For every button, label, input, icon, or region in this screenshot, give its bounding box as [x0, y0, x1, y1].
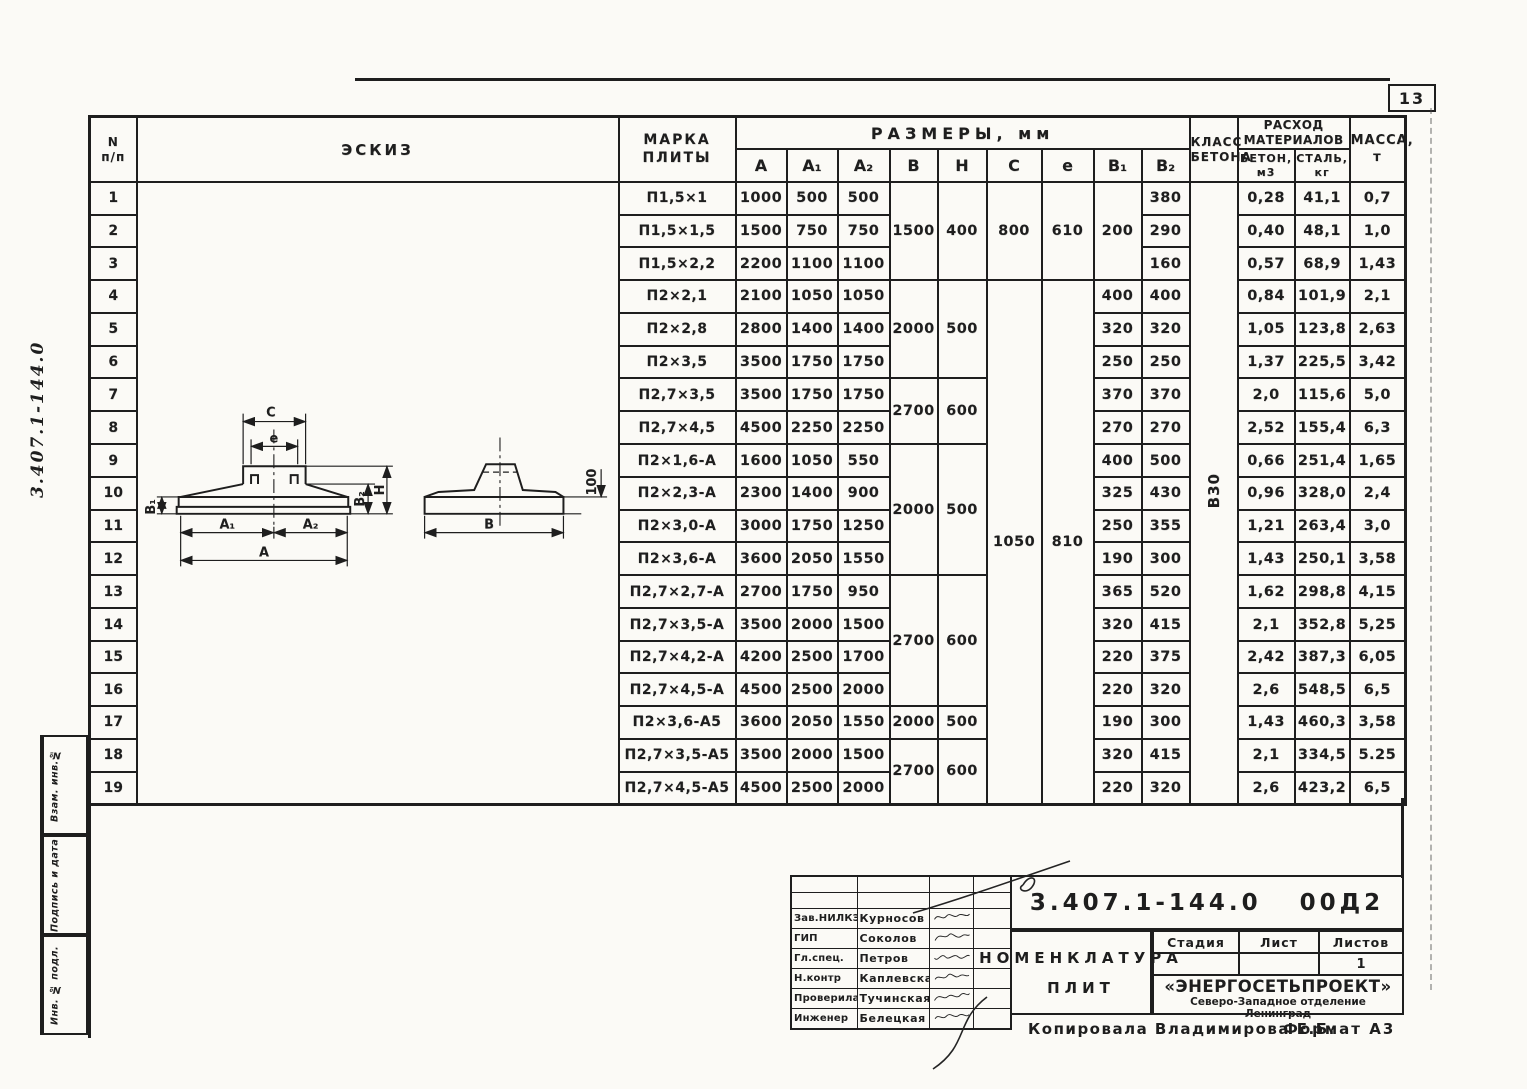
cell-mass: 3,42	[1350, 346, 1406, 379]
cell-h: 400	[938, 182, 987, 280]
cell-mass: 5,0	[1350, 378, 1406, 411]
cell-concrete: 2,1	[1238, 608, 1295, 641]
header-materials-2: МАТЕРИАЛОВ	[1239, 133, 1349, 148]
cell-b: 2700	[890, 378, 938, 444]
cell-a2: 1750	[838, 378, 890, 411]
concrete-class-value: В30	[1205, 473, 1223, 508]
cell-b2: 380	[1142, 182, 1190, 215]
cell-a1: 1400	[787, 313, 838, 346]
cell-a1: 1100	[787, 247, 838, 280]
cell-steel: 250,1	[1295, 542, 1350, 575]
cell-mass: 2,1	[1350, 280, 1406, 313]
cell-a2: 1550	[838, 706, 890, 739]
cell-steel: 115,6	[1295, 378, 1350, 411]
cell-steel: 423,2	[1295, 772, 1350, 805]
header-e: е	[1042, 149, 1094, 182]
cell-b: 1500	[890, 182, 938, 280]
cell-a1: 1750	[787, 510, 838, 543]
cell-h: 600	[938, 378, 987, 444]
dim-label-e: е	[269, 431, 278, 446]
header-dimensions: РАЗМЕРЫ, мм	[736, 117, 1190, 150]
sketch-side-view: 100 В	[424, 437, 606, 538]
cell-mark: П2,7×2,7-А	[619, 575, 736, 608]
cell-mass: 6,05	[1350, 641, 1406, 674]
cell-steel: 41,1	[1295, 182, 1350, 215]
signer-name: Каплевская	[857, 968, 929, 988]
cell-mark: П2,7×3,5-А	[619, 608, 736, 641]
signature-icon	[932, 950, 972, 964]
frame-left-line	[88, 798, 91, 1038]
cell-a1: 2000	[787, 608, 838, 641]
cell-mark: П2×3,0-А	[619, 510, 736, 543]
cell-concrete: 0,57	[1238, 247, 1295, 280]
cell-mass: 2,63	[1350, 313, 1406, 346]
cell-mark: П2,7×4,5-А	[619, 673, 736, 706]
cell-a: 1000	[736, 182, 787, 215]
header-concrete-1: БЕТОН,	[1239, 152, 1294, 166]
header-b: В	[890, 149, 938, 182]
cell-concrete: 1,21	[1238, 510, 1295, 543]
header-materials: РАСХОД МАТЕРИАЛОВ	[1238, 117, 1350, 150]
cell-mass: 1,43	[1350, 247, 1406, 280]
sheet-label: Лист	[1238, 930, 1320, 954]
stamp-podpis-data: Подпись и дата	[40, 835, 88, 935]
cell-concrete: 0,84	[1238, 280, 1295, 313]
cell-concrete: 1,43	[1238, 706, 1295, 739]
header-steel-2: кг	[1296, 166, 1349, 180]
sheets-label: Листов	[1318, 930, 1404, 954]
stamp-vzam-inv: Взам. инв.№	[40, 735, 88, 835]
cell-a1: 750	[787, 215, 838, 248]
signer-name: Петров	[857, 948, 929, 968]
cell-steel: 123,8	[1295, 313, 1350, 346]
cell-b2: 320	[1142, 772, 1190, 805]
cell-b2: 415	[1142, 608, 1190, 641]
cell-a: 3000	[736, 510, 787, 543]
cell-num: 5	[90, 313, 137, 346]
cell-a1: 2500	[787, 673, 838, 706]
cell-e: 610	[1042, 182, 1094, 280]
cell-b2: 400	[1142, 280, 1190, 313]
cell-concrete: 0,66	[1238, 444, 1295, 477]
cell-b1: 370	[1094, 378, 1142, 411]
cell-b1: 250	[1094, 510, 1142, 543]
cell-a1: 1050	[787, 444, 838, 477]
cell-concrete: 2,52	[1238, 411, 1295, 444]
cell-mass: 2,4	[1350, 477, 1406, 510]
top-rule	[355, 78, 1390, 81]
cell-a: 3500	[736, 346, 787, 379]
cell-b: 2000	[890, 280, 938, 378]
stamp-inv-podl: Инв. № подл.	[40, 935, 88, 1035]
cell-mass: 6,5	[1350, 673, 1406, 706]
cell-a1: 2050	[787, 542, 838, 575]
cell-mass: 4,15	[1350, 575, 1406, 608]
cell-mark: П2×3,6-А	[619, 542, 736, 575]
sheet-value	[1238, 952, 1320, 976]
sig-empty-cell	[791, 892, 857, 908]
cell-mass: 3,58	[1350, 542, 1406, 575]
cell-a1: 2250	[787, 411, 838, 444]
header-num-top: N	[91, 135, 136, 150]
signature-cell	[929, 968, 973, 988]
cell-a1: 2050	[787, 706, 838, 739]
title-block: Зав.НИЛКЭ Курносов ГИП Соколов Гл.спец. …	[790, 875, 1404, 1015]
cell-a1: 2500	[787, 772, 838, 805]
signature-icon	[932, 970, 972, 984]
cell-a2: 1500	[838, 739, 890, 772]
header-mark-2: ПЛИТЫ	[620, 150, 735, 168]
header-mark-1: МАРКА	[620, 132, 735, 150]
cell-a2: 1250	[838, 510, 890, 543]
cell-num: 1	[90, 182, 137, 215]
stamp-label: Инв. № подл.	[42, 937, 66, 1033]
cell-concrete: 2,42	[1238, 641, 1295, 674]
cell-b2: 320	[1142, 673, 1190, 706]
cell-b2: 375	[1142, 641, 1190, 674]
cell-concrete: 2,6	[1238, 673, 1295, 706]
header-sketch: ЭСКИЗ	[137, 117, 619, 183]
cell-num: 3	[90, 247, 137, 280]
cell-a: 4200	[736, 641, 787, 674]
cell-mark: П2×1,6-А	[619, 444, 736, 477]
cell-mark: П2×3,5	[619, 346, 736, 379]
cell-concrete: 0,40	[1238, 215, 1295, 248]
cell-concrete: 2,6	[1238, 772, 1295, 805]
dim-label-h: Н	[372, 485, 387, 496]
sketch-cell: С е В₁ В₂ Н	[137, 182, 619, 805]
cell-num: 8	[90, 411, 137, 444]
cell-b2: 355	[1142, 510, 1190, 543]
header-mark: МАРКА ПЛИТЫ	[619, 117, 736, 183]
header-class-1: КЛАСС	[1191, 135, 1237, 150]
cell-steel: 352,8	[1295, 608, 1350, 641]
signer-name: Соколов	[857, 928, 929, 948]
cell-a: 2200	[736, 247, 787, 280]
cell-mark: П2,7×4,2-А	[619, 641, 736, 674]
cell-a1: 1750	[787, 378, 838, 411]
cell-b1: 325	[1094, 477, 1142, 510]
cell-a: 2800	[736, 313, 787, 346]
cell-mass: 0,7	[1350, 182, 1406, 215]
cell-b1: 320	[1094, 313, 1142, 346]
cell-a1: 500	[787, 182, 838, 215]
signer-role: Н.контр	[791, 968, 857, 988]
cell-mark: П2×2,1	[619, 280, 736, 313]
cell-b2: 290	[1142, 215, 1190, 248]
cell-a2: 1750	[838, 346, 890, 379]
sig-empty-cell	[791, 876, 857, 892]
cell-concrete-class: В30	[1190, 182, 1238, 805]
cell-steel: 548,5	[1295, 673, 1350, 706]
cell-b1: 270	[1094, 411, 1142, 444]
cell-mark: П1,5×1	[619, 182, 736, 215]
cell-a: 3500	[736, 378, 787, 411]
cell-a2: 550	[838, 444, 890, 477]
dim-label-b2: В₂	[353, 491, 368, 506]
header-num: N п/п	[90, 117, 137, 183]
header-b2: В₂	[1142, 149, 1190, 182]
page-number-box: 13	[1388, 84, 1436, 112]
cell-b1: 220	[1094, 772, 1142, 805]
side-doc-number: 3.407.1-144.0	[28, 318, 68, 498]
cell-b1: 320	[1094, 739, 1142, 772]
cell-b1: 220	[1094, 641, 1142, 674]
cell-num: 9	[90, 444, 137, 477]
cell-mark: П2×2,3-А	[619, 477, 736, 510]
cell-a: 2100	[736, 280, 787, 313]
table-row: 1	[90, 182, 1406, 215]
cell-mass: 6,3	[1350, 411, 1406, 444]
cell-num: 19	[90, 772, 137, 805]
cell-h: 500	[938, 444, 987, 575]
cell-b2: 415	[1142, 739, 1190, 772]
cell-num: 16	[90, 673, 137, 706]
cell-a2: 1100	[838, 247, 890, 280]
cell-concrete: 0,96	[1238, 477, 1295, 510]
cell-e: 810	[1042, 280, 1094, 805]
cell-a1: 1750	[787, 346, 838, 379]
sig-empty-cell	[973, 928, 1011, 948]
header-steel: СТАЛЬ, кг	[1295, 149, 1350, 182]
cell-a2: 1400	[838, 313, 890, 346]
cell-concrete: 1,43	[1238, 542, 1295, 575]
cell-steel: 298,8	[1295, 575, 1350, 608]
dim-label-b: В	[484, 518, 494, 533]
cell-num: 14	[90, 608, 137, 641]
cell-b2: 160	[1142, 247, 1190, 280]
cell-a1: 2000	[787, 739, 838, 772]
cell-a: 2700	[736, 575, 787, 608]
dim-label-a1: А₁	[219, 518, 235, 533]
cell-num: 7	[90, 378, 137, 411]
cell-a2: 1700	[838, 641, 890, 674]
cell-a2: 750	[838, 215, 890, 248]
cell-a: 3500	[736, 739, 787, 772]
cell-h: 500	[938, 706, 987, 739]
format-note: Формат А3	[1283, 1020, 1395, 1038]
cell-num: 10	[90, 477, 137, 510]
stamp-label: Подпись и дата	[42, 837, 66, 933]
header-a2: А₂	[838, 149, 890, 182]
organization-branch: Северо-Западное отделение	[1154, 996, 1402, 1008]
cell-num: 6	[90, 346, 137, 379]
cell-steel: 101,9	[1295, 280, 1350, 313]
cell-a1: 1400	[787, 477, 838, 510]
header-mass-1: МАССА,	[1351, 133, 1405, 149]
cell-concrete: 1,05	[1238, 313, 1295, 346]
cell-a2: 500	[838, 182, 890, 215]
page-number: 13	[1399, 89, 1425, 108]
cell-steel: 460,3	[1295, 706, 1350, 739]
cell-b1: 190	[1094, 706, 1142, 739]
cell-b2: 430	[1142, 477, 1190, 510]
cell-mark: П2,7×4,5-А5	[619, 772, 736, 805]
cell-mass: 5.25	[1350, 739, 1406, 772]
cell-steel: 68,9	[1295, 247, 1350, 280]
cell-mark: П1,5×2,2	[619, 247, 736, 280]
cell-concrete: 1,37	[1238, 346, 1295, 379]
cell-mass: 6,5	[1350, 772, 1406, 805]
cell-b1: 400	[1094, 280, 1142, 313]
dim-label-b1: В₁	[143, 499, 158, 514]
nomenclature-table: N п/п ЭСКИЗ МАРКА ПЛИТЫ РАЗМЕРЫ, мм КЛАС…	[88, 115, 1407, 806]
cell-b2: 270	[1142, 411, 1190, 444]
cell-b2: 250	[1142, 346, 1190, 379]
frame-right-line	[1401, 798, 1404, 878]
header-b1: В₁	[1094, 149, 1142, 182]
cell-concrete: 0,28	[1238, 182, 1295, 215]
paper-fold-line	[1430, 108, 1432, 990]
cell-num: 18	[90, 739, 137, 772]
cell-num: 12	[90, 542, 137, 575]
cell-num: 2	[90, 215, 137, 248]
cell-b2: 520	[1142, 575, 1190, 608]
cell-mass: 1,0	[1350, 215, 1406, 248]
cell-a2: 1500	[838, 608, 890, 641]
cell-mark: П1,5×1,5	[619, 215, 736, 248]
header-h: Н	[938, 149, 987, 182]
sketch-front-view: С е В₁ В₂ Н	[143, 406, 392, 567]
cell-b: 2700	[890, 575, 938, 706]
cell-b: 2700	[890, 739, 938, 805]
cell-b1: 220	[1094, 673, 1142, 706]
cell-a2: 2250	[838, 411, 890, 444]
cell-steel: 334,5	[1295, 739, 1350, 772]
cell-steel: 48,1	[1295, 215, 1350, 248]
cell-a: 3500	[736, 608, 787, 641]
cell-num: 4	[90, 280, 137, 313]
cell-a: 4500	[736, 772, 787, 805]
signature-cell	[929, 948, 973, 968]
cell-a1: 1050	[787, 280, 838, 313]
cell-b2: 300	[1142, 542, 1190, 575]
cell-a2: 950	[838, 575, 890, 608]
cell-h: 600	[938, 575, 987, 706]
cell-c: 800	[987, 182, 1042, 280]
cell-b1: 400	[1094, 444, 1142, 477]
header-concrete-class: КЛАСС БЕТОНА	[1190, 117, 1238, 183]
cell-concrete: 1,62	[1238, 575, 1295, 608]
signer-role: Гл.спец.	[791, 948, 857, 968]
cell-a1: 2500	[787, 641, 838, 674]
ink-flourish-icon	[905, 855, 1075, 917]
cell-steel: 263,4	[1295, 510, 1350, 543]
cell-concrete: 2,1	[1238, 739, 1295, 772]
cell-a: 2300	[736, 477, 787, 510]
cell-mark: П2×3,6-А5	[619, 706, 736, 739]
cell-steel: 387,3	[1295, 641, 1350, 674]
cell-a1: 1750	[787, 575, 838, 608]
document-title-box: НОМЕНКЛАТУРА ПЛИТ	[1010, 930, 1152, 1015]
cell-a: 4500	[736, 411, 787, 444]
signer-role: ГИП	[791, 928, 857, 948]
cell-a2: 2000	[838, 673, 890, 706]
cell-steel: 251,4	[1295, 444, 1350, 477]
cell-b: 2000	[890, 444, 938, 575]
cell-b2: 300	[1142, 706, 1190, 739]
cell-b2: 370	[1142, 378, 1190, 411]
cell-b1: 250	[1094, 346, 1142, 379]
slab-sketch: С е В₁ В₂ Н	[139, 183, 617, 799]
dim-label-lip: 100	[585, 469, 600, 496]
header-mass: МАССА, т	[1350, 117, 1406, 183]
sig-empty-cell	[973, 968, 1011, 988]
stage-label: Стадия	[1152, 930, 1240, 954]
cell-steel: 328,0	[1295, 477, 1350, 510]
cell-mass: 5,25	[1350, 608, 1406, 641]
cell-a2: 900	[838, 477, 890, 510]
header-materials-1: РАСХОД	[1239, 118, 1349, 133]
cell-b1: 200	[1094, 182, 1142, 280]
document-code: 00Д2	[1300, 890, 1385, 916]
cell-a: 1600	[736, 444, 787, 477]
header-concrete-2: м3	[1239, 166, 1294, 180]
cell-steel: 155,4	[1295, 411, 1350, 444]
header-a: А	[736, 149, 787, 182]
cell-steel: 225,5	[1295, 346, 1350, 379]
drawing-sheet: 13 3.407.1-144.0 Взам. инв.№ Подпись и д…	[0, 0, 1527, 1089]
stage-value	[1152, 952, 1240, 976]
cell-num: 11	[90, 510, 137, 543]
signature-cell	[929, 928, 973, 948]
header-mass-2: т	[1351, 150, 1405, 166]
cell-a2: 2000	[838, 772, 890, 805]
cell-a: 3600	[736, 706, 787, 739]
cell-num: 15	[90, 641, 137, 674]
cell-mark: П2,7×3,5-А5	[619, 739, 736, 772]
cell-b1: 365	[1094, 575, 1142, 608]
signer-role: Проверила	[791, 988, 857, 1008]
cell-h: 500	[938, 280, 987, 378]
cell-a: 4500	[736, 673, 787, 706]
signer-role: Зав.НИЛКЭ	[791, 908, 857, 928]
dim-label-a: А	[258, 545, 268, 560]
cell-mark: П2,7×3,5	[619, 378, 736, 411]
cell-mass: 1,65	[1350, 444, 1406, 477]
cell-a: 3600	[736, 542, 787, 575]
stamp-label: Взам. инв.№	[42, 737, 66, 833]
document-title-line2: ПЛИТ	[1047, 979, 1115, 997]
cell-mark: П2×2,8	[619, 313, 736, 346]
cell-concrete: 2,0	[1238, 378, 1295, 411]
cell-a: 1500	[736, 215, 787, 248]
cell-mass: 3,58	[1350, 706, 1406, 739]
cell-num: 17	[90, 706, 137, 739]
cell-c: 1050	[987, 280, 1042, 805]
header-c: С	[987, 149, 1042, 182]
header-steel-1: СТАЛЬ,	[1296, 152, 1349, 166]
cell-b2: 320	[1142, 313, 1190, 346]
cell-b1: 320	[1094, 608, 1142, 641]
organization-name: «ЭНЕРГОСЕТЬПРОЕКТ»	[1154, 978, 1402, 996]
cell-b1: 190	[1094, 542, 1142, 575]
cell-h: 600	[938, 739, 987, 805]
organization-city: Ленинград	[1154, 1008, 1402, 1020]
cell-a2: 1550	[838, 542, 890, 575]
header-num-bottom: п/п	[91, 150, 136, 165]
header-class-2: БЕТОНА	[1191, 150, 1237, 165]
signature-icon	[932, 930, 972, 944]
sheets-value: 1	[1318, 952, 1404, 976]
cell-b2: 500	[1142, 444, 1190, 477]
dim-label-c: С	[266, 406, 275, 421]
dim-label-a2: А₂	[302, 518, 318, 533]
header-a1: А₁	[787, 149, 838, 182]
cell-a2: 1050	[838, 280, 890, 313]
cell-mark: П2,7×4,5	[619, 411, 736, 444]
ink-tail-icon	[915, 993, 1005, 1073]
